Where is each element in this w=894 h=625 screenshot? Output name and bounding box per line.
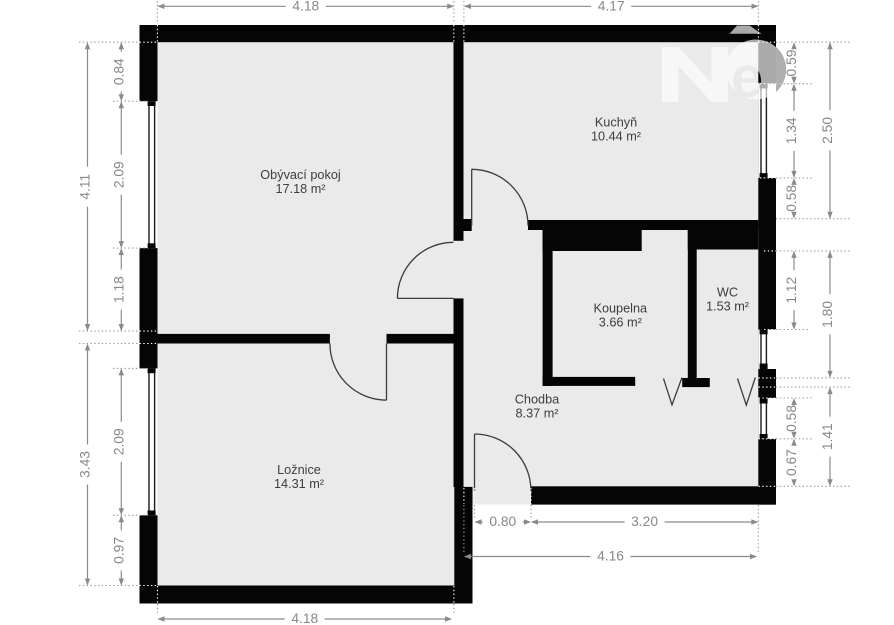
svg-text:3.66 m²: 3.66 m² xyxy=(599,316,642,330)
svg-text:0.80: 0.80 xyxy=(489,514,516,529)
svg-text:4.18: 4.18 xyxy=(292,0,319,13)
svg-text:4.18: 4.18 xyxy=(291,611,318,625)
svg-text:3.43: 3.43 xyxy=(78,451,93,478)
svg-text:WC: WC xyxy=(717,286,738,300)
svg-text:1.80: 1.80 xyxy=(820,301,835,328)
svg-text:Ložnice: Ložnice xyxy=(277,463,321,477)
svg-text:0.84: 0.84 xyxy=(111,58,126,85)
svg-text:1.34: 1.34 xyxy=(784,117,799,144)
svg-text:4.17: 4.17 xyxy=(598,0,625,13)
svg-text:14.31 m²: 14.31 m² xyxy=(274,477,324,491)
svg-text:0.58: 0.58 xyxy=(784,405,799,432)
svg-text:10.44 m²: 10.44 m² xyxy=(591,129,641,143)
svg-text:0.97: 0.97 xyxy=(111,537,126,564)
svg-text:17.18 m²: 17.18 m² xyxy=(275,182,325,196)
svg-text:2.50: 2.50 xyxy=(820,117,835,144)
svg-text:Kuchyň: Kuchyň xyxy=(595,115,637,129)
svg-text:2.09: 2.09 xyxy=(111,161,126,188)
svg-text:3.20: 3.20 xyxy=(631,514,658,529)
svg-text:8.37 m²: 8.37 m² xyxy=(515,407,558,421)
svg-text:4.11: 4.11 xyxy=(78,174,93,200)
svg-text:Obývací pokoj: Obývací pokoj xyxy=(260,168,340,182)
svg-text:0.58: 0.58 xyxy=(784,185,799,212)
svg-text:0.59: 0.59 xyxy=(784,49,799,76)
svg-text:Chodba: Chodba xyxy=(515,393,560,407)
svg-text:1.53 m²: 1.53 m² xyxy=(706,300,749,314)
svg-text:1.41: 1.41 xyxy=(820,423,835,450)
svg-text:4.16: 4.16 xyxy=(597,549,624,564)
svg-text:Koupelna: Koupelna xyxy=(593,302,648,316)
svg-text:2.09: 2.09 xyxy=(111,428,126,455)
svg-text:1.12: 1.12 xyxy=(784,277,799,304)
svg-text:1.18: 1.18 xyxy=(111,276,126,303)
svg-text:0.67: 0.67 xyxy=(784,449,799,476)
